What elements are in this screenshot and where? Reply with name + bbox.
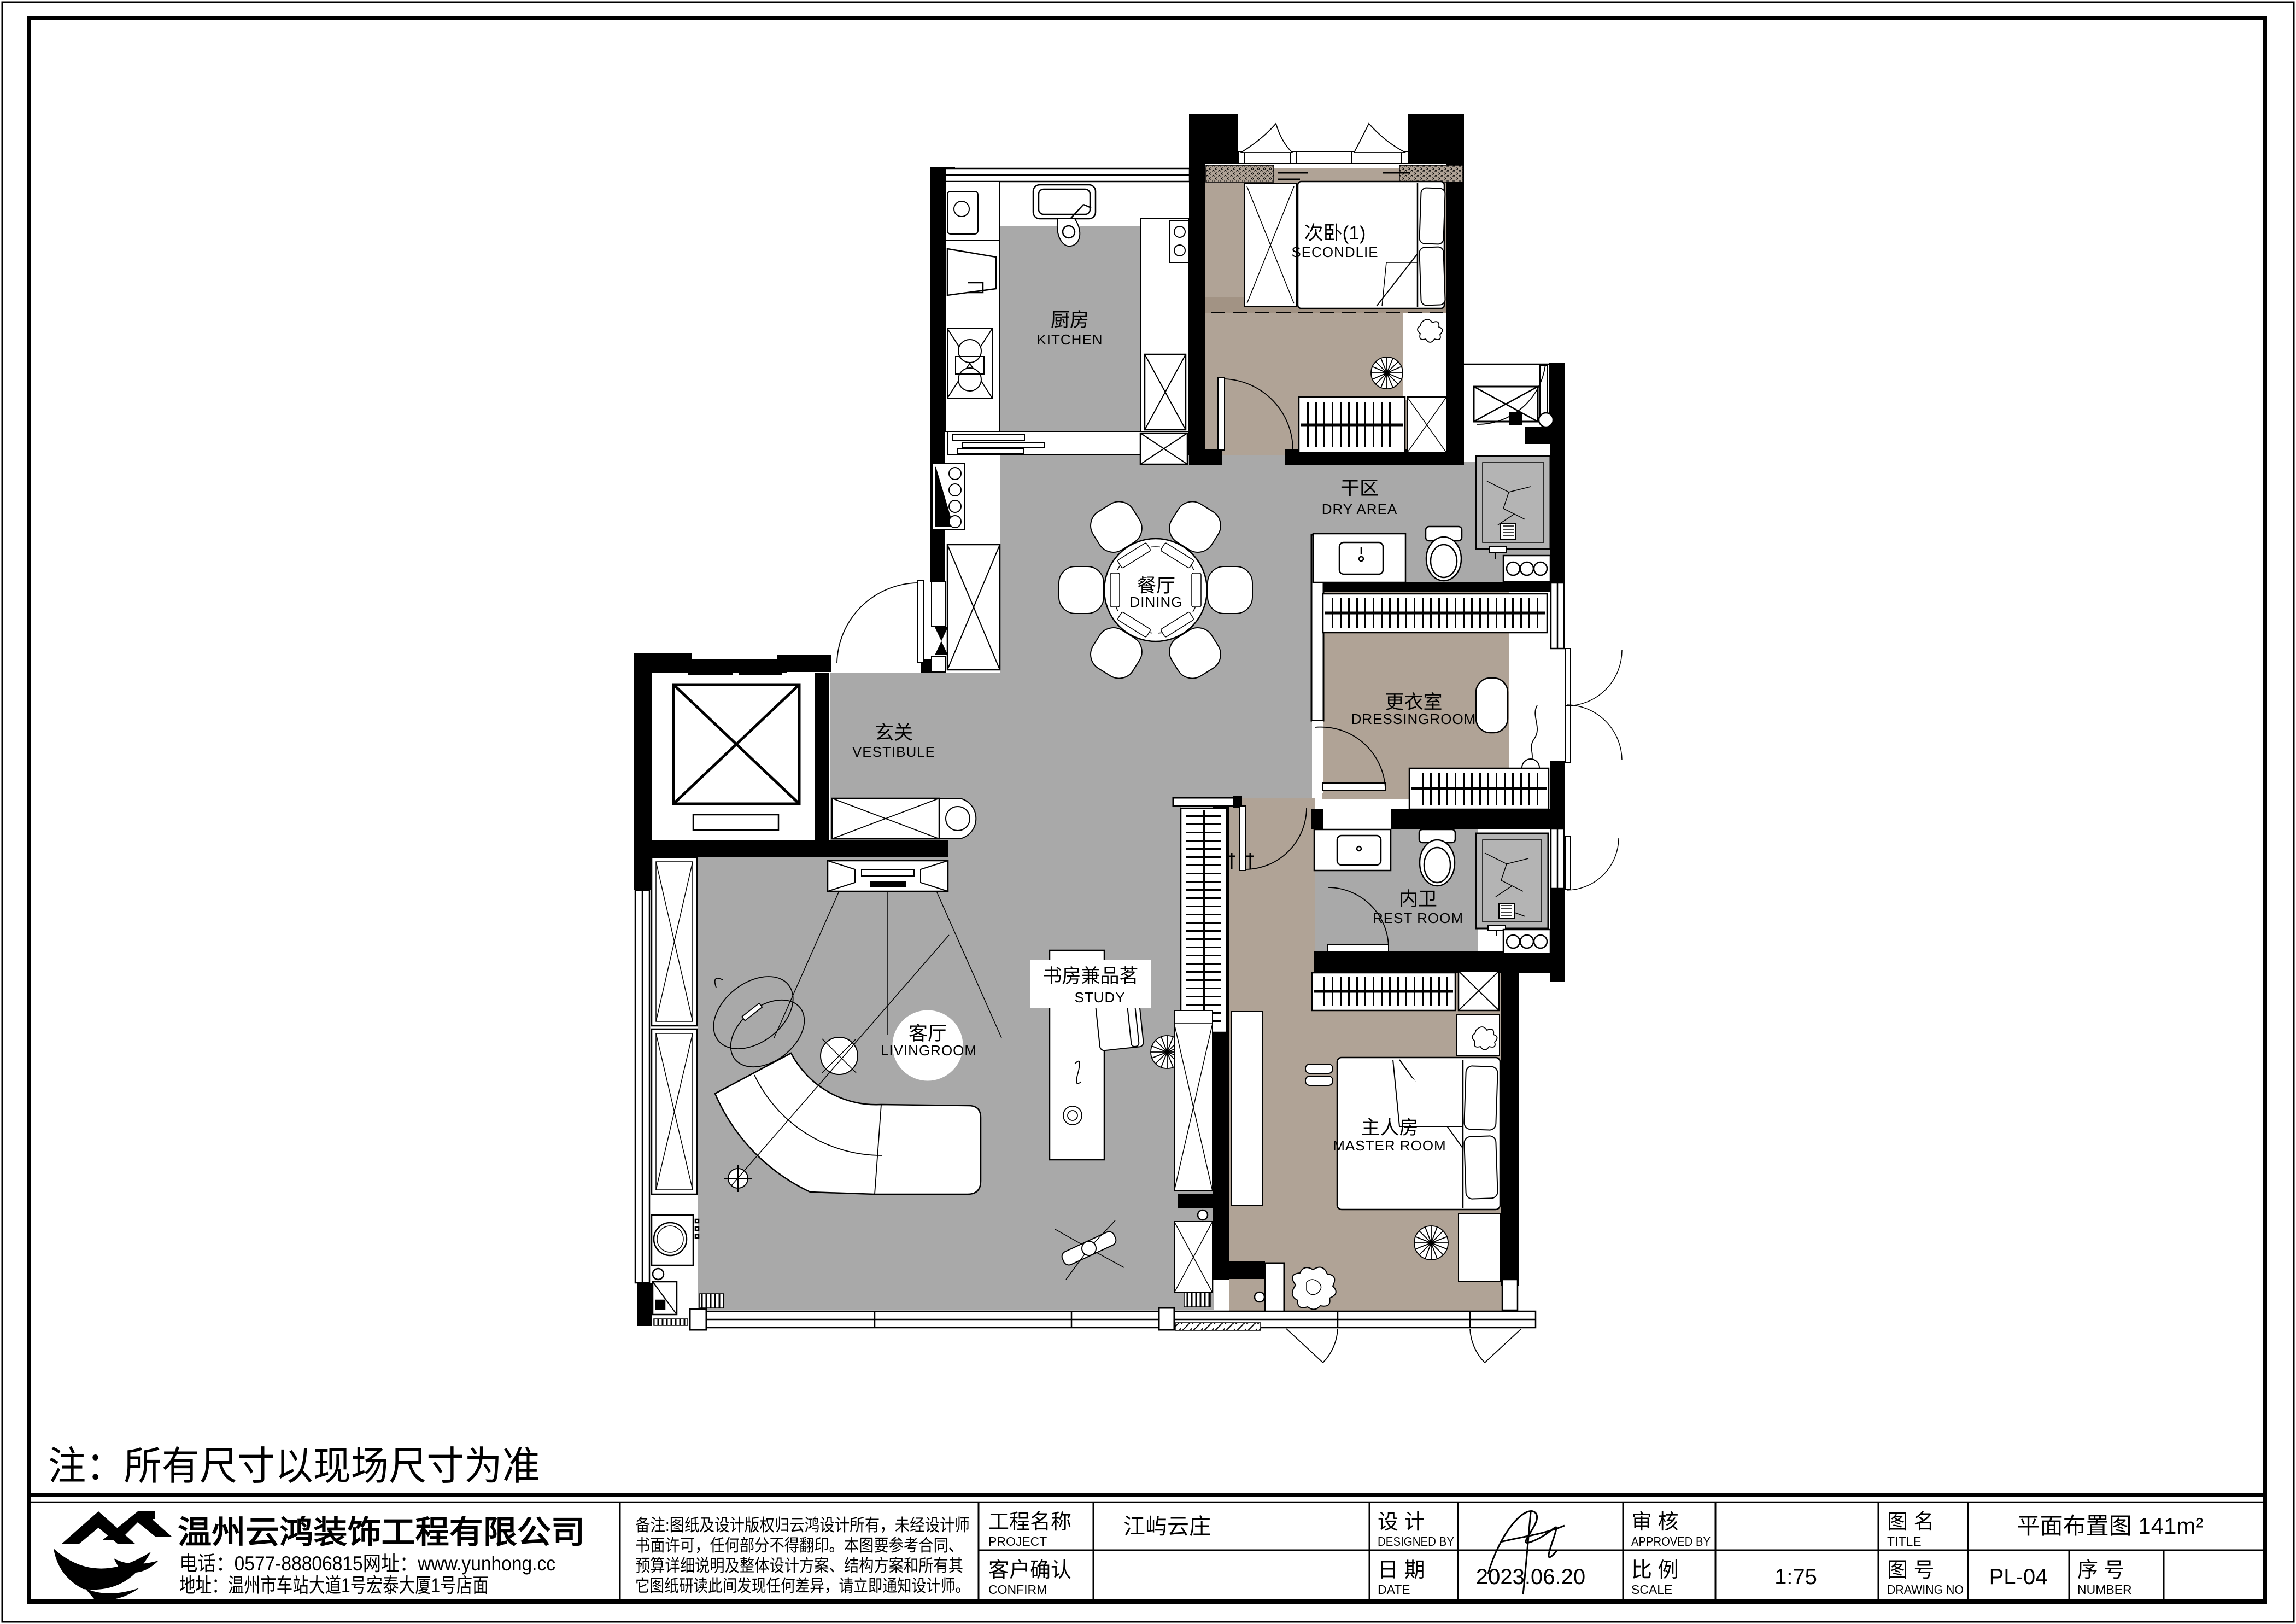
svg-text:TITLE: TITLE bbox=[1887, 1534, 1922, 1549]
svg-text:江屿云庄: 江屿云庄 bbox=[1123, 1515, 1211, 1539]
svg-text:书面许可，任何部分不得翻印。本图要参考合同、: 书面许可，任何部分不得翻印。本图要参考合同、 bbox=[635, 1536, 963, 1555]
svg-text:1:75: 1:75 bbox=[1774, 1565, 1817, 1589]
svg-text:内卫: 内卫 bbox=[1399, 889, 1437, 910]
svg-text:STUDY: STUDY bbox=[1074, 989, 1125, 1006]
svg-text:NUMBER: NUMBER bbox=[2077, 1582, 2132, 1597]
svg-text:MASTER ROOM: MASTER ROOM bbox=[1333, 1137, 1446, 1154]
svg-text:VESTIBULE: VESTIBULE bbox=[852, 744, 935, 760]
svg-text:备注:图纸及设计版权归云鸿设计所有，未经设计师: 备注:图纸及设计版权归云鸿设计所有，未经设计师 bbox=[635, 1516, 970, 1535]
svg-text:图 号: 图 号 bbox=[1887, 1559, 1935, 1582]
svg-text:次卧(1): 次卧(1) bbox=[1304, 223, 1366, 244]
svg-text:主人房: 主人房 bbox=[1361, 1117, 1418, 1138]
svg-text:PL-04: PL-04 bbox=[1989, 1565, 2048, 1589]
svg-text:2023.06.20: 2023.06.20 bbox=[1476, 1565, 1585, 1589]
svg-text:电话：0577-88806815网址：www.yunhong: 电话：0577-88806815网址：www.yunhong.cc bbox=[179, 1552, 555, 1575]
svg-text:温州云鸿装饰工程有限公司: 温州云鸿装饰工程有限公司 bbox=[178, 1515, 585, 1550]
svg-text:图 名: 图 名 bbox=[1887, 1511, 1935, 1534]
svg-text:平面布置图 141m²: 平面布置图 141m² bbox=[2017, 1513, 2204, 1539]
svg-text:DESIGNED BY: DESIGNED BY bbox=[1378, 1534, 1454, 1549]
svg-text:APPROVED BY: APPROVED BY bbox=[1631, 1534, 1711, 1549]
svg-text:预算详细说明及整体设计方案、结构方案和所有其: 预算详细说明及整体设计方案、结构方案和所有其 bbox=[635, 1556, 963, 1575]
svg-text:SECONDLIE: SECONDLIE bbox=[1291, 244, 1378, 260]
svg-text:REST ROOM: REST ROOM bbox=[1373, 910, 1463, 926]
svg-text:更衣室: 更衣室 bbox=[1385, 692, 1442, 713]
svg-text:KITCHEN: KITCHEN bbox=[1036, 331, 1103, 348]
svg-text:DRAWING NO: DRAWING NO bbox=[1887, 1582, 1964, 1597]
svg-text:序 号: 序 号 bbox=[2077, 1559, 2125, 1582]
svg-text:地址：温州市车站大道1号宏泰大厦1号店面: 地址：温州市车站大道1号宏泰大厦1号店面 bbox=[179, 1574, 489, 1597]
svg-text:DINING: DINING bbox=[1130, 594, 1183, 610]
svg-text:日 期: 日 期 bbox=[1378, 1559, 1425, 1582]
svg-text:DRY AREA: DRY AREA bbox=[1322, 501, 1398, 517]
svg-text:PROJECT: PROJECT bbox=[988, 1534, 1047, 1549]
svg-text:客户确认: 客户确认 bbox=[988, 1559, 1071, 1582]
svg-text:它图纸研读此间发现任何差异，请立即通知设计师。: 它图纸研读此间发现任何差异，请立即通知设计师。 bbox=[635, 1576, 970, 1596]
svg-text:玄关: 玄关 bbox=[875, 722, 913, 744]
svg-text:LIVINGROOM: LIVINGROOM bbox=[881, 1042, 977, 1059]
svg-text:客厅: 客厅 bbox=[909, 1023, 947, 1044]
svg-text:工程名称: 工程名称 bbox=[988, 1511, 1071, 1534]
svg-text:DATE: DATE bbox=[1378, 1582, 1410, 1597]
svg-text:厨房: 厨房 bbox=[1051, 309, 1089, 331]
svg-text:干区: 干区 bbox=[1340, 478, 1379, 499]
svg-text:设 计: 设 计 bbox=[1378, 1511, 1425, 1534]
svg-text:审 核: 审 核 bbox=[1631, 1511, 1679, 1534]
svg-text:SCALE: SCALE bbox=[1631, 1582, 1672, 1597]
svg-text:CONFIRM: CONFIRM bbox=[988, 1582, 1047, 1597]
svg-text:注：所有尺寸以现场尺寸为准: 注：所有尺寸以现场尺寸为准 bbox=[48, 1445, 540, 1488]
svg-text:比 例: 比 例 bbox=[1631, 1559, 1679, 1582]
svg-text:书房兼品茗: 书房兼品茗 bbox=[1042, 966, 1138, 987]
svg-text:DRESSINGROOM: DRESSINGROOM bbox=[1351, 711, 1477, 727]
